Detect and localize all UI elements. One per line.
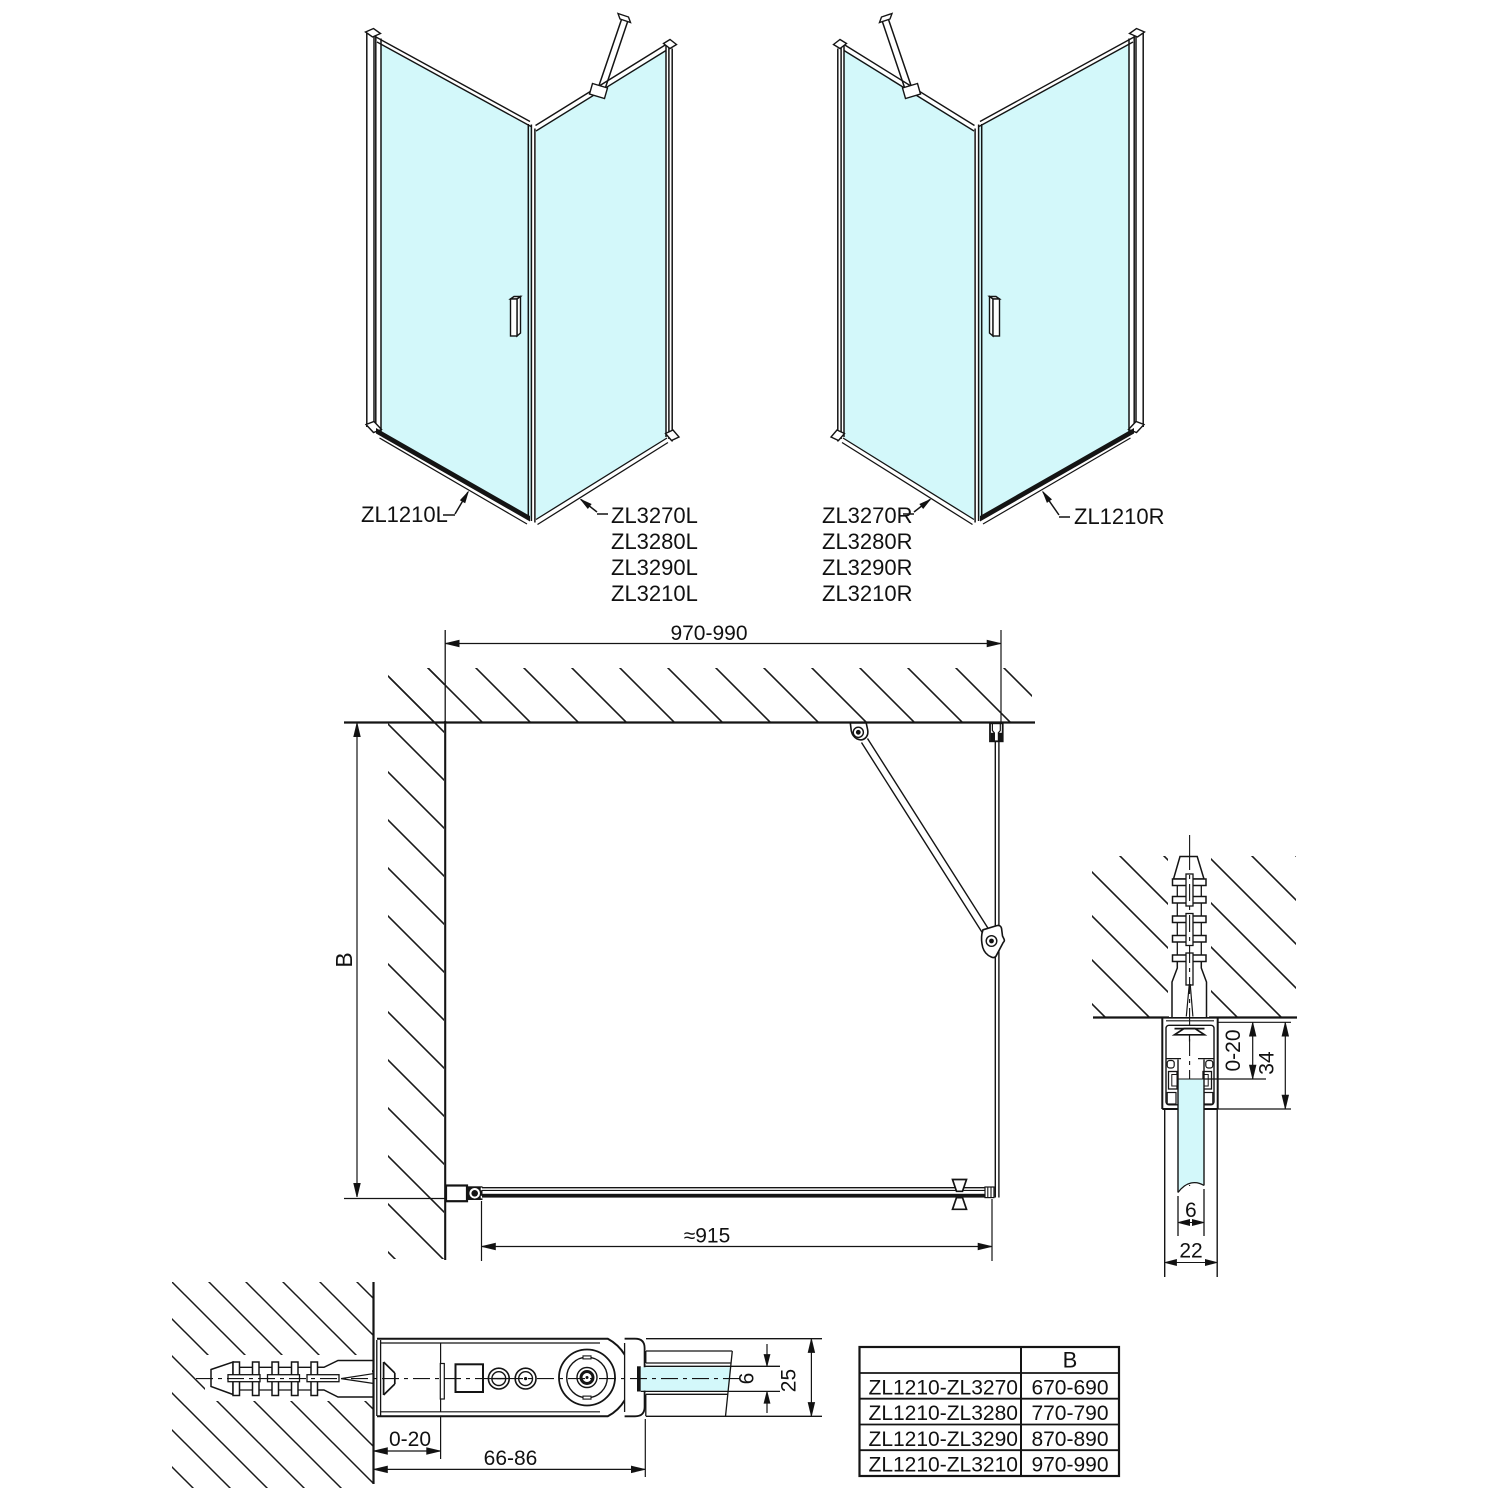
svg-text:ZL1210R: ZL1210R — [1074, 504, 1165, 529]
svg-text:0-20: 0-20 — [389, 1428, 431, 1451]
svg-text:≈915: ≈915 — [684, 1225, 731, 1248]
svg-text:ZL1210-ZL3290: ZL1210-ZL3290 — [869, 1428, 1018, 1451]
svg-text:ZL3210L: ZL3210L — [611, 581, 698, 606]
svg-text:670-690: 670-690 — [1031, 1376, 1108, 1399]
svg-text:66-86: 66-86 — [484, 1447, 538, 1470]
svg-text:ZL1210-ZL3280: ZL1210-ZL3280 — [869, 1402, 1018, 1425]
svg-text:34: 34 — [1256, 1051, 1279, 1075]
svg-text:970-990: 970-990 — [670, 622, 747, 645]
svg-text:22: 22 — [1179, 1240, 1202, 1263]
svg-text:6: 6 — [1185, 1199, 1197, 1222]
svg-text:0-20: 0-20 — [1222, 1029, 1245, 1071]
svg-text:ZL3270R: ZL3270R — [822, 503, 913, 528]
svg-text:ZL1210L: ZL1210L — [361, 502, 448, 527]
svg-text:770-790: 770-790 — [1031, 1402, 1108, 1425]
svg-text:6: 6 — [736, 1373, 759, 1385]
svg-text:ZL3280L: ZL3280L — [611, 529, 698, 554]
svg-text:B: B — [1063, 1348, 1078, 1373]
svg-text:ZL3210R: ZL3210R — [822, 581, 913, 606]
svg-text:ZL3280R: ZL3280R — [822, 529, 913, 554]
svg-text:ZL1210-ZL3270: ZL1210-ZL3270 — [869, 1376, 1018, 1399]
svg-text:ZL3270L: ZL3270L — [611, 503, 698, 528]
svg-text:ZL1210-ZL3210: ZL1210-ZL3210 — [869, 1454, 1018, 1477]
svg-text:870-890: 870-890 — [1031, 1428, 1108, 1451]
svg-text:ZL3290R: ZL3290R — [822, 555, 913, 580]
svg-text:ZL3290L: ZL3290L — [611, 555, 698, 580]
svg-text:970-990: 970-990 — [1031, 1454, 1108, 1477]
svg-text:25: 25 — [778, 1369, 801, 1392]
svg-text:B: B — [331, 952, 357, 967]
